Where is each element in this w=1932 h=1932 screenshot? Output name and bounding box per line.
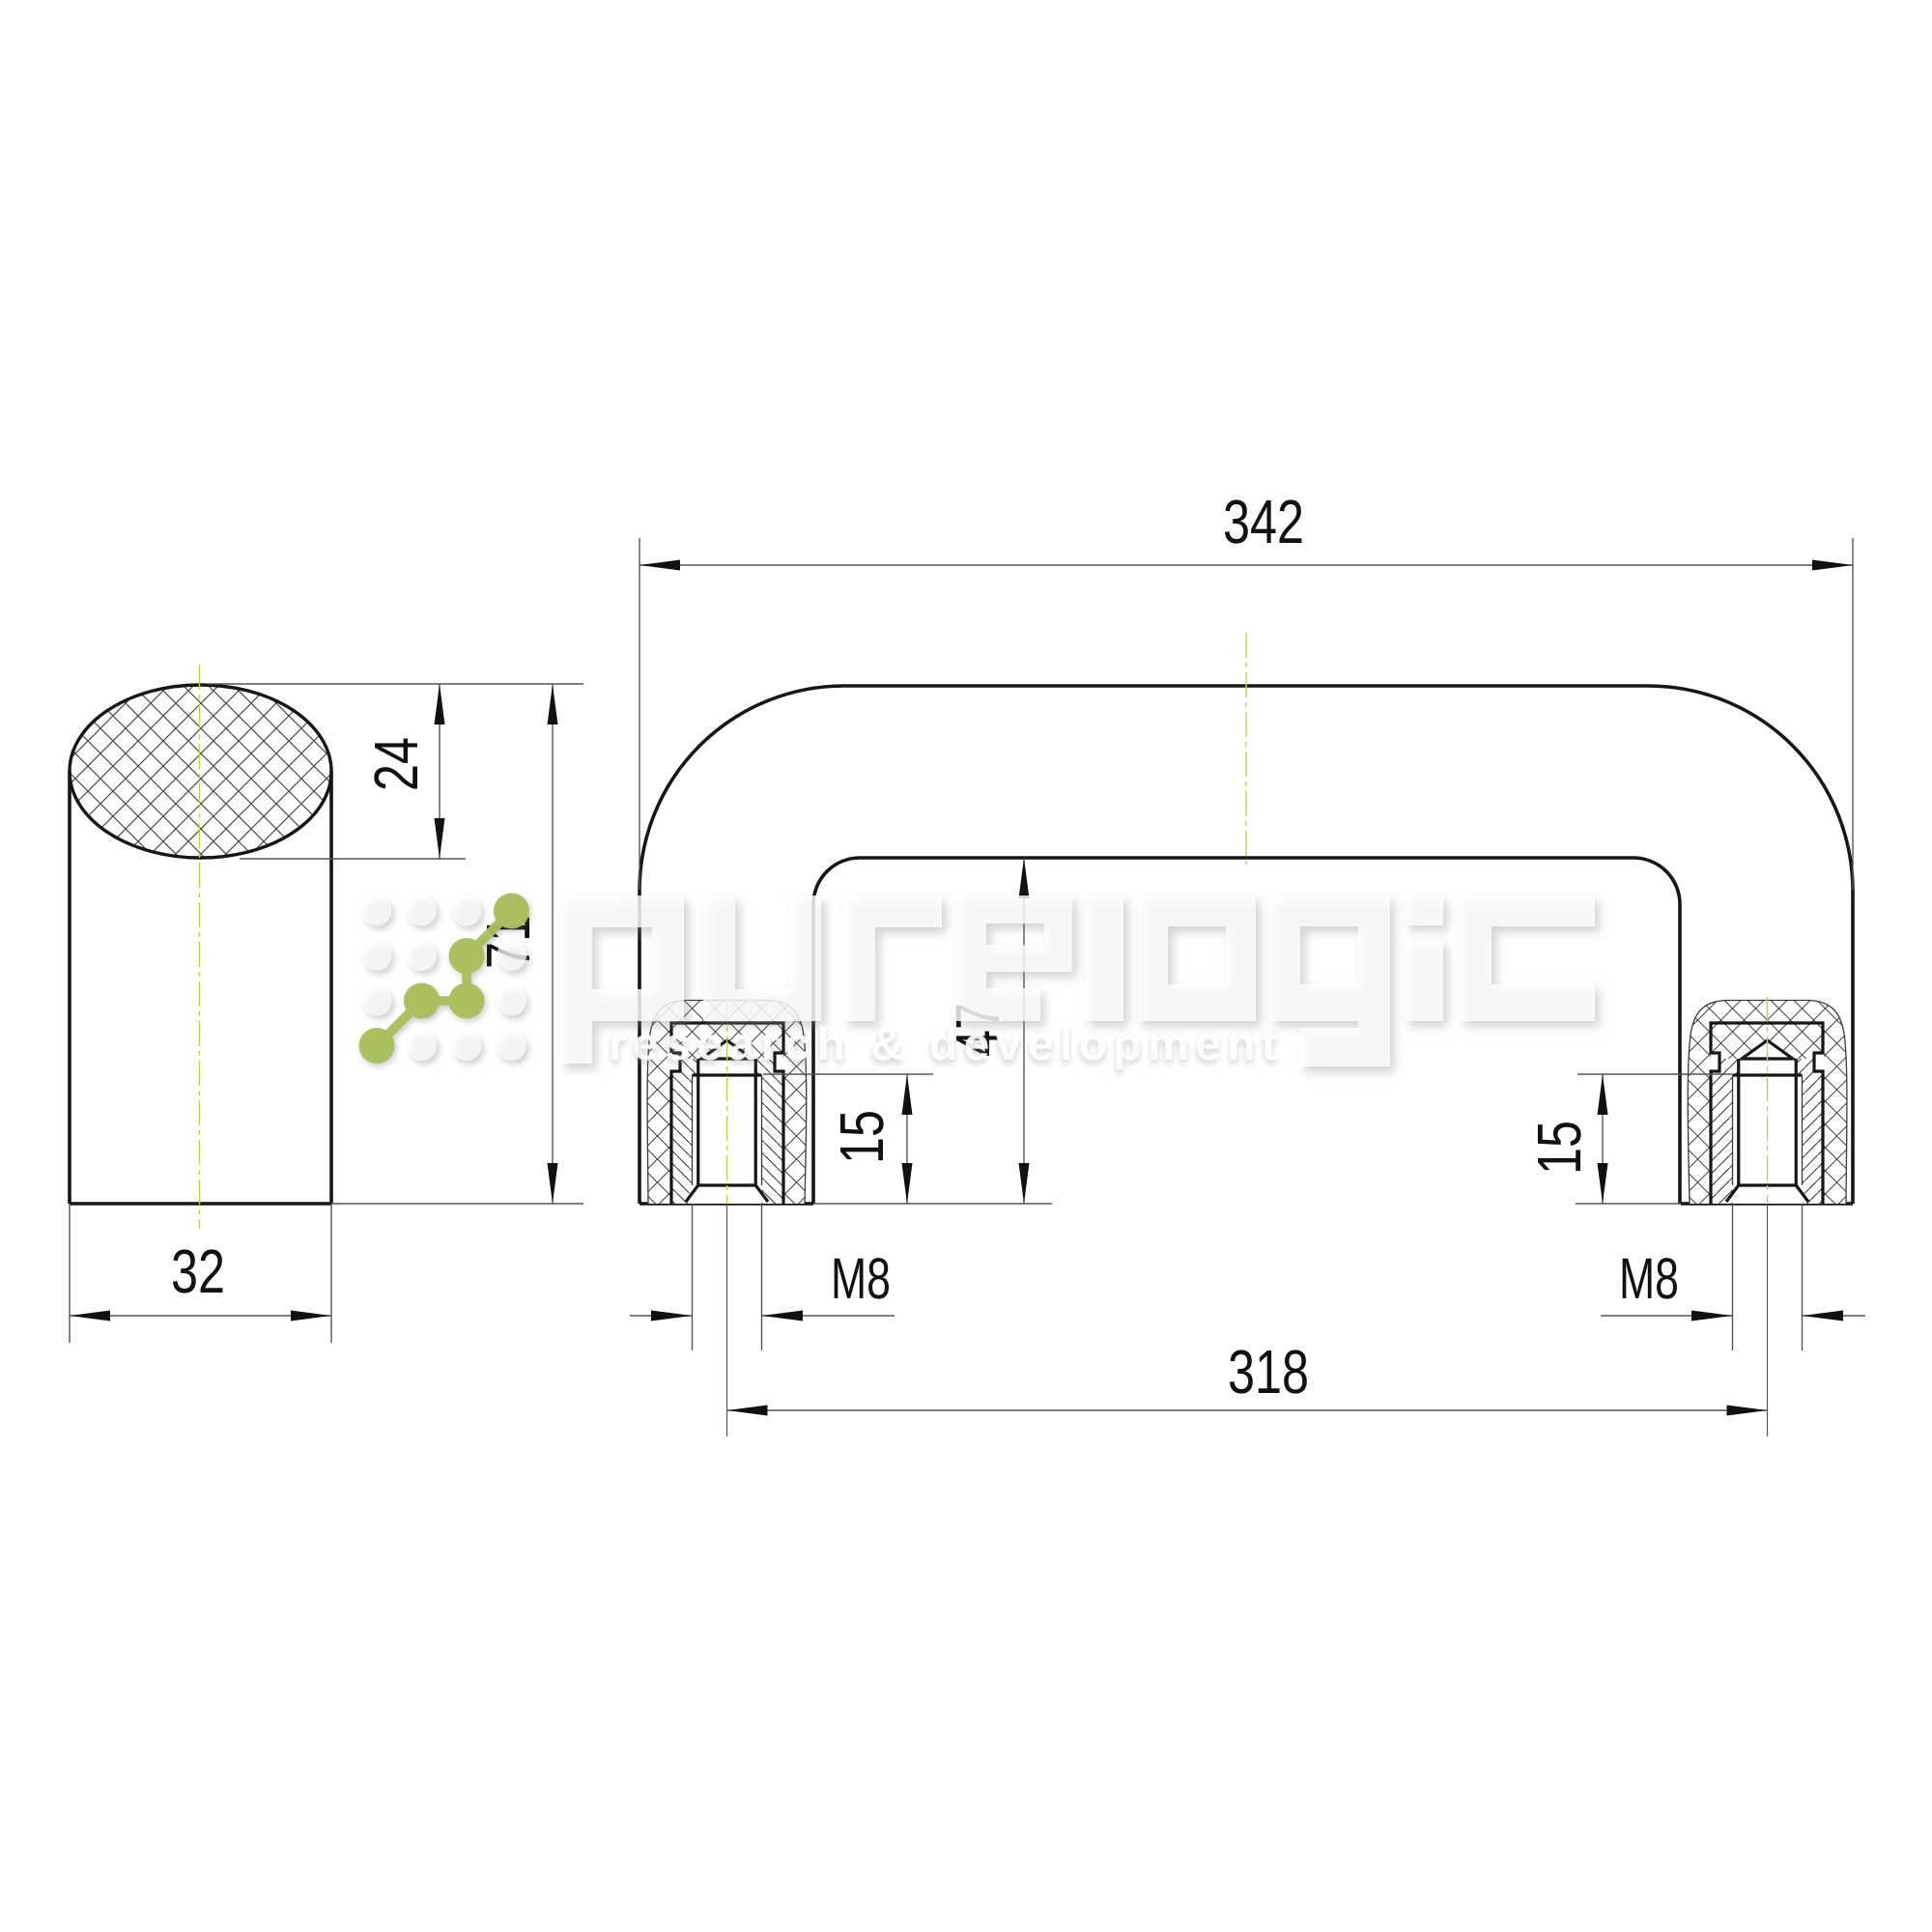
svg-text:15: 15 [827,1110,896,1164]
svg-text:15: 15 [1524,1121,1594,1175]
svg-text:M8: M8 [831,1246,891,1311]
svg-text:research & development: research & development [609,1019,1277,1070]
svg-text:M8: M8 [1619,1246,1679,1311]
svg-text:24: 24 [361,737,431,791]
svg-text:342: 342 [1223,487,1304,556]
svg-text:318: 318 [1228,1337,1309,1406]
svg-text:32: 32 [171,1236,225,1306]
